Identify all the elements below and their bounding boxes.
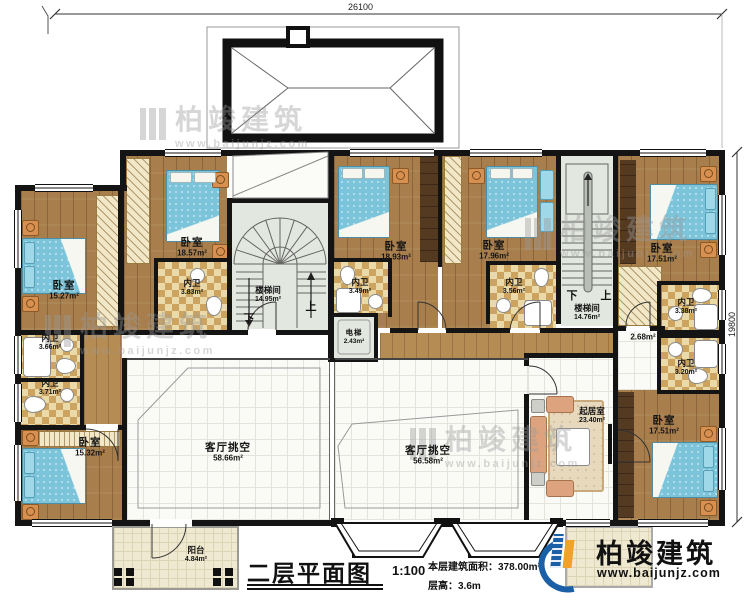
armchair-bottom bbox=[546, 480, 574, 497]
room-label-hall: 2.68m² bbox=[630, 332, 655, 341]
sink-icon bbox=[60, 388, 74, 402]
window bbox=[35, 184, 93, 192]
floor-plan-sheet: 柏竣建筑www.baijunjz.com 柏竣建筑www.baijunjz.co… bbox=[0, 0, 750, 600]
room-label-bath-l2: 内卫3.83m² bbox=[181, 279, 203, 297]
room-label-bedroom-l2: 卧室18.57m² bbox=[177, 236, 207, 257]
tv-icon bbox=[608, 424, 612, 464]
bathtub-icon bbox=[694, 340, 718, 368]
nightstand bbox=[392, 168, 409, 184]
window bbox=[14, 384, 22, 422]
pillow-mr bbox=[490, 168, 511, 179]
room-label-bedroom-tl: 卧室15.27m² bbox=[49, 279, 79, 300]
room-label-bedroom-br: 卧室17.51m² bbox=[649, 414, 679, 435]
room-label-family-room: 起居室23.40m² bbox=[579, 407, 605, 425]
cabinet-mr2 bbox=[540, 202, 554, 232]
room-label-bath-l3: 内卫3.66m² bbox=[39, 334, 61, 352]
drawing-title: 二层平面图 bbox=[247, 554, 372, 588]
nightstand bbox=[22, 220, 39, 236]
window bbox=[470, 149, 542, 157]
living-void-left-floor bbox=[127, 358, 330, 520]
title-underline bbox=[247, 588, 383, 590]
pillow-tl bbox=[24, 242, 35, 264]
sink-icon bbox=[368, 294, 383, 309]
nightstand bbox=[700, 426, 717, 442]
room-label-bath-mr: 内卫3.56m² bbox=[503, 278, 525, 296]
side-table bbox=[531, 472, 545, 486]
pillow-l2b bbox=[194, 172, 216, 183]
coffee-table bbox=[556, 428, 590, 466]
brand-url: www.baijunjz.com bbox=[597, 566, 721, 580]
watermark: 柏竣建筑www.baijunjz.com bbox=[140, 98, 310, 150]
room-label-stairwell-right: 楼梯间14.76m² bbox=[574, 304, 600, 322]
floor-height-note: 层高：3.6m bbox=[428, 577, 481, 592]
window bbox=[165, 149, 221, 157]
title-underline bbox=[247, 584, 383, 586]
desk-bedroom-m bbox=[420, 156, 438, 262]
room-label-living-void-right: 客厅挑空56.58m² bbox=[405, 444, 451, 465]
pillow-br bbox=[703, 446, 714, 468]
room-label-bedroom-m: 卧室18.93m² bbox=[381, 240, 411, 261]
living-void-right-floor bbox=[335, 358, 528, 520]
sink-icon bbox=[60, 338, 74, 352]
window bbox=[718, 290, 726, 320]
corridor-left-floor bbox=[84, 335, 122, 427]
window bbox=[14, 210, 22, 268]
stair-down-label: 下 bbox=[244, 310, 255, 326]
nightstand bbox=[22, 504, 39, 520]
pillow-m bbox=[342, 168, 363, 179]
room-label-bedroom-tr: 卧室17.51m² bbox=[647, 242, 677, 263]
nightstand bbox=[22, 296, 39, 312]
floor-area-note: 本层建筑面积：378.00m² bbox=[428, 558, 541, 573]
window bbox=[14, 445, 22, 501]
window bbox=[32, 519, 112, 527]
window bbox=[638, 519, 708, 527]
closet-bedroom-tl bbox=[96, 195, 120, 327]
desk-bedroom-br bbox=[618, 392, 634, 518]
sink-icon bbox=[668, 342, 683, 357]
stair-up-label: 上 bbox=[601, 287, 612, 303]
sofa-left bbox=[530, 416, 547, 474]
room-label-living-void-left: 客厅挑空58.66m² bbox=[205, 441, 251, 462]
nightstand bbox=[700, 500, 717, 516]
window bbox=[640, 149, 706, 157]
pillow-tl2 bbox=[24, 266, 35, 288]
dimension-right: 19800 bbox=[727, 312, 737, 337]
pillow-bl2 bbox=[24, 476, 35, 498]
stair-up-label: 上 bbox=[306, 298, 317, 314]
nightstand bbox=[700, 242, 717, 258]
pillow-l2 bbox=[170, 172, 192, 183]
pillow-mr2 bbox=[512, 168, 533, 179]
watermark-building-icon bbox=[140, 108, 166, 140]
bathtub-icon bbox=[694, 304, 718, 330]
desk-bedroom-tr bbox=[620, 160, 636, 264]
closet-bedroom-l2 bbox=[126, 158, 150, 264]
window bbox=[718, 344, 726, 374]
nightstand bbox=[700, 166, 717, 182]
room-label-stairwell-left: 楼梯间14.95m² bbox=[255, 286, 281, 304]
window bbox=[14, 336, 22, 374]
pillow-tr2 bbox=[705, 212, 716, 234]
room-label-bath-r2: 内卫3.20m² bbox=[675, 359, 697, 377]
window bbox=[718, 428, 726, 490]
armchair-top bbox=[546, 396, 574, 413]
brand-logo-icon bbox=[536, 530, 590, 584]
room-label-bath-l4: 内卫3.71m² bbox=[39, 379, 61, 397]
sink-icon bbox=[496, 298, 511, 313]
nightstand bbox=[468, 168, 485, 184]
room-label-elevator: 电梯2.43m² bbox=[344, 329, 365, 345]
room-label-bedroom-bl: 卧室15.32m² bbox=[75, 436, 105, 457]
room-label-balcony: 阳台4.84m² bbox=[185, 546, 207, 564]
pillow-tr bbox=[705, 188, 716, 210]
nightstand bbox=[22, 430, 39, 446]
dimension-top: 26100 bbox=[348, 2, 373, 12]
room-label-bath-m: 内卫3.49m² bbox=[349, 278, 371, 296]
closet-bedroom-mr bbox=[444, 156, 462, 264]
closet-bedroom-tr bbox=[618, 266, 662, 326]
cabinet-mr bbox=[540, 170, 554, 200]
room-label-bath-r1: 内卫3.38m² bbox=[675, 298, 697, 316]
side-table bbox=[531, 399, 545, 413]
drawing-scale: 1:100 bbox=[392, 563, 425, 578]
room-label-bedroom-mr: 卧室17.96m² bbox=[479, 239, 509, 260]
shower-icon bbox=[524, 300, 552, 326]
stair-down-label: 下 bbox=[567, 287, 578, 303]
pillow-m2 bbox=[364, 168, 385, 179]
balcony-door-opening bbox=[150, 519, 192, 527]
window bbox=[718, 195, 726, 255]
pillow-br2 bbox=[703, 470, 714, 492]
window bbox=[566, 519, 610, 527]
pillow-bl bbox=[24, 452, 35, 474]
window bbox=[350, 149, 434, 157]
